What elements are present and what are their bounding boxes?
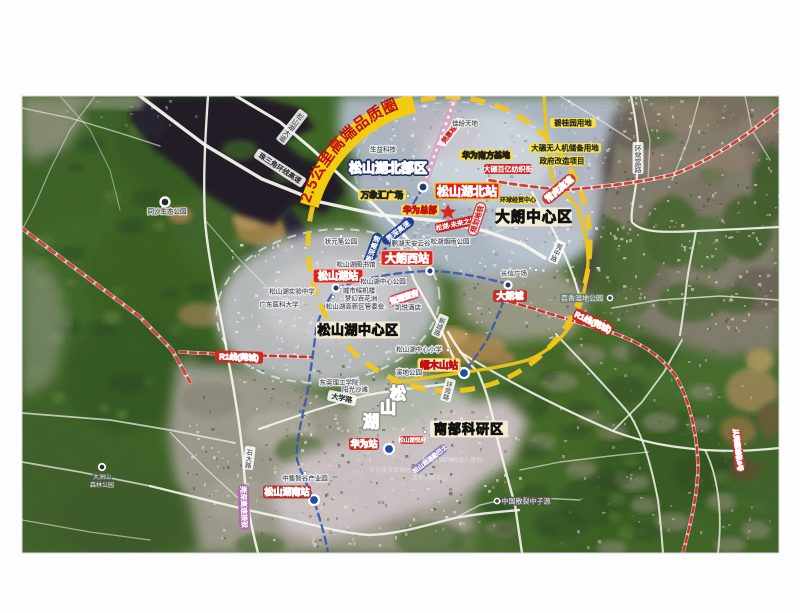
svg-text:大洲山: 大洲山 [93, 473, 111, 481]
svg-text:阳光沙滩: 阳光沙滩 [342, 384, 369, 393]
svg-text:松山湖中心小学: 松山湖中心小学 [396, 344, 442, 353]
svg-text:中国散裂中子源: 中国散裂中子源 [502, 497, 551, 506]
svg-text:常: 常 [635, 151, 642, 160]
svg-text:生益科技: 生益科技 [370, 144, 397, 153]
svg-text:松山湖图书馆: 松山湖图书馆 [337, 259, 377, 268]
svg-text:荔香湿地公园: 荔香湿地公园 [561, 294, 603, 303]
svg-text:松山湖悦府: 松山湖悦府 [398, 436, 426, 444]
svg-text:长信广场: 长信广场 [501, 268, 528, 277]
svg-text:佳纷天地: 佳纷天地 [452, 118, 479, 127]
svg-text:状元笔公园: 状元笔公园 [325, 236, 358, 245]
svg-text:广东医科大学: 广东医科大学 [260, 299, 300, 308]
svg-text:环: 环 [635, 145, 642, 153]
svg-text:森林公园: 森林公园 [90, 481, 114, 489]
svg-text:大碾无人机储备用地: 大碾无人机储备用地 [531, 143, 599, 153]
svg-text:松山湖高新区管委会: 松山湖高新区管委会 [326, 301, 385, 310]
svg-text:山: 山 [380, 399, 396, 417]
svg-text:松山湖站: 松山湖站 [318, 270, 358, 283]
svg-text:松山湖国际机器人基地: 松山湖国际机器人基地 [422, 456, 482, 464]
svg-text:同沙生态公园: 同沙生态公园 [148, 206, 187, 215]
svg-text:政府改造项目: 政府改造项目 [540, 156, 585, 166]
svg-text:华为南方基地: 华为南方基地 [462, 150, 510, 160]
svg-text:松山湖北部区: 松山湖北部区 [349, 161, 427, 176]
svg-text:松湖烟雨公园: 松湖烟雨公园 [431, 236, 470, 245]
svg-text:华为总部: 华为总部 [403, 205, 438, 215]
svg-text:环球经贸中心: 环球经贸中心 [500, 196, 536, 204]
svg-text:松山湖中心区: 松山湖中心区 [317, 323, 398, 338]
svg-text:松山湖实验中学: 松山湖实验中学 [269, 286, 315, 295]
svg-text:万象汇广场: 万象汇广场 [360, 190, 404, 200]
svg-text:城市候机楼: 城市候机楼 [343, 285, 376, 294]
svg-text:松山湖北站: 松山湖北站 [437, 183, 497, 198]
svg-text:华为溪流背坡村: 华为溪流背坡村 [369, 466, 411, 474]
svg-text:湖: 湖 [363, 413, 379, 431]
svg-text:路: 路 [635, 165, 642, 174]
svg-text:清华创新中心: 清华创新中心 [412, 474, 448, 482]
svg-text:松山湖中心公园: 松山湖中心公园 [360, 276, 406, 285]
svg-text:凯悦酒店: 凯悦酒店 [395, 302, 422, 311]
svg-text:帽木山站: 帽木山站 [420, 359, 459, 371]
svg-text:鹏湖天安云谷: 鹏湖天安云谷 [392, 238, 432, 247]
svg-text:中集智谷产业园: 中集智谷产业园 [282, 473, 328, 482]
svg-text:溪地公园: 溪地公园 [396, 367, 422, 376]
svg-text:华为站: 华为站 [350, 438, 377, 449]
svg-text:南部科研区: 南部科研区 [434, 422, 504, 437]
svg-text:东莞理工学院: 东莞理工学院 [320, 377, 360, 386]
svg-text:大朗西站: 大朗西站 [385, 251, 429, 265]
svg-text:大朗城: 大朗城 [496, 290, 523, 301]
svg-text:大碾百亿纺织街: 大碾百亿纺织街 [484, 165, 533, 174]
svg-text:梦幻百花洲: 梦幻百花洲 [345, 293, 378, 302]
svg-text:富: 富 [635, 158, 642, 167]
svg-text:大朗中心区: 大朗中心区 [495, 208, 573, 226]
svg-text:松山湖南站: 松山湖南站 [264, 486, 309, 497]
svg-text:碧桂园用地: 碧桂园用地 [554, 118, 592, 128]
svg-text:R1线(莞城): R1线(莞城) [219, 351, 259, 362]
